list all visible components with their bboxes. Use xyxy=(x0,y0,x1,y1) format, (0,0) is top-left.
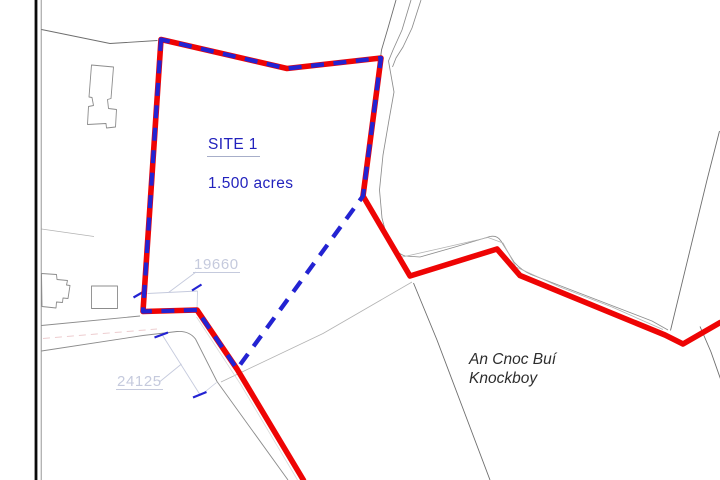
map-frame xyxy=(35,0,42,480)
map-drawing xyxy=(0,0,720,480)
site-title: SITE 1 xyxy=(207,136,260,157)
field-boundaries xyxy=(42,30,720,480)
field-line-northwest xyxy=(42,30,158,44)
buildings xyxy=(42,65,118,309)
building-outline-west xyxy=(42,274,71,309)
townland-label: An Cnoc Buí Knockboy xyxy=(469,351,556,388)
dimension-extension-19660 xyxy=(197,291,198,310)
building-outline-house xyxy=(88,65,117,128)
field-line-southwest xyxy=(221,282,412,382)
road-centerline-faint xyxy=(43,329,157,339)
road-edge-outer xyxy=(380,0,669,330)
townland-name-irish: An Cnoc Buí xyxy=(469,351,556,370)
road-edge-southwest-lower xyxy=(42,331,289,480)
townland-name-english: Knockboy xyxy=(469,370,556,389)
dimension-line-19660 xyxy=(148,291,198,294)
dimension-leader-24125 xyxy=(160,364,182,382)
building-outline-shed xyxy=(92,286,118,309)
site-location-map: SITE 1 1.500 acres 19660 24125 An Cnoc B… xyxy=(0,0,720,480)
roads xyxy=(42,0,669,480)
neatline-bar xyxy=(35,0,38,480)
field-line-west-stub xyxy=(42,229,95,237)
dimension-label-24125: 24125 xyxy=(116,374,163,390)
site-area: 1.500 acres xyxy=(208,175,293,193)
field-line-east xyxy=(671,131,720,331)
dimension-line-24125 xyxy=(162,335,201,396)
boundary-blue-dashed-outline xyxy=(143,40,381,370)
dimension-tick xyxy=(193,392,207,398)
dimension-label-19660: 19660 xyxy=(193,257,240,273)
road-edge-north-east xyxy=(393,0,422,67)
road-edge-faint-south xyxy=(197,317,298,480)
dimension-tick xyxy=(192,285,202,291)
road-edge-southwest-upper xyxy=(42,316,141,326)
